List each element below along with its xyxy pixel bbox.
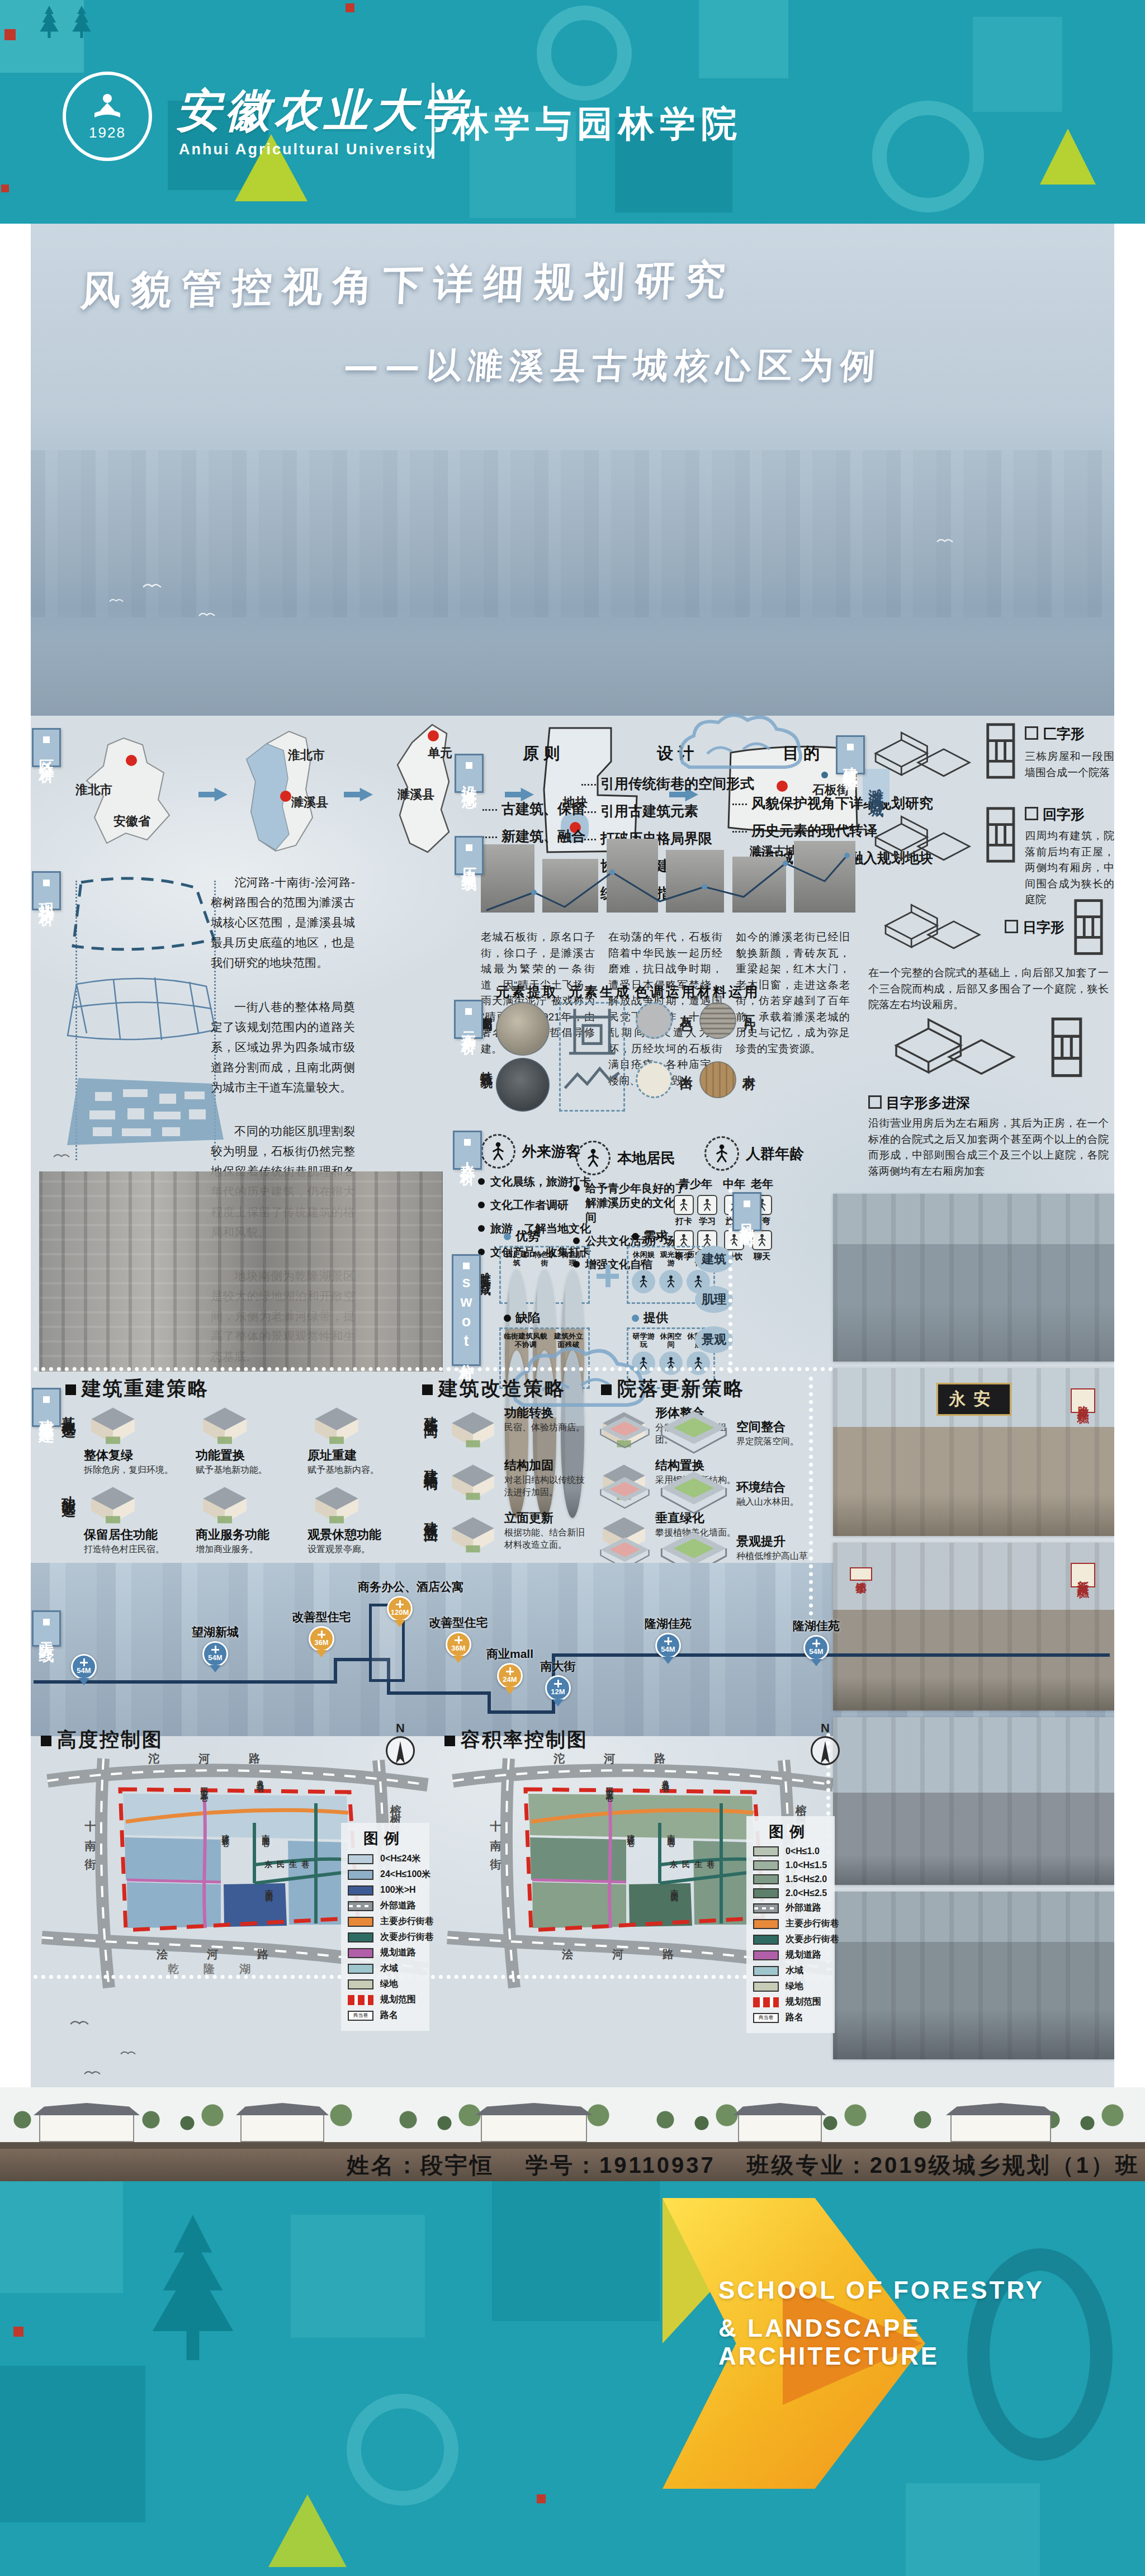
legend-swatch (753, 1950, 779, 1960)
tone-gray-label: 灰色 (678, 1005, 695, 1010)
pattern-shape (872, 101, 984, 212)
poster-subtitle: ——以濉溪县古城核心区为例 (342, 342, 883, 389)
combo-type-3: 日字形 在一个完整的合院式的基础上，向后部又加套了一个三合院而构成，后部又多围合… (868, 894, 1114, 1013)
strategy-item-name: 原址重建 (307, 1447, 413, 1464)
plus-icon (664, 1637, 672, 1645)
skyline-pin-label: 望湖新城 (173, 1624, 257, 1640)
height-pin-icon: 54M (803, 1635, 829, 1661)
courtyard-row-name: 环境结合 (736, 1479, 820, 1496)
bird-icon (143, 582, 162, 589)
height-pin-icon: 120M (387, 1596, 413, 1622)
concept-principle-item: 古建筑、保留 (482, 800, 585, 818)
courtyard-row-desc: 融入山水林田。 (736, 1496, 820, 1508)
tab-building-combination: 建筑组合 (836, 735, 865, 774)
tab-design-concept: 设计概念 (455, 754, 484, 793)
strategy-item: 立面更新 根据功能、结合新旧材料改造立面。 (446, 1510, 590, 1554)
history-photo-strip (481, 839, 850, 923)
element-col-material: 材料运用 (697, 983, 760, 1001)
location-dot (428, 730, 439, 741)
legend-row: 外部道路 (348, 1900, 423, 1912)
demand-item: 休闲娱乐 (631, 1251, 657, 1293)
activity-label: 聊天 (754, 1251, 770, 1262)
pattern-shape (268, 2494, 347, 2567)
courtyard-row-name: 空间整合 (736, 1419, 820, 1435)
student-name-label: 姓名： (347, 2150, 420, 2181)
bird-icon (70, 2019, 89, 2026)
legend-swatch (753, 1997, 779, 2007)
skyline-pin-label: 隆湖佳苑 (626, 1616, 710, 1632)
age-group-name: 青少年 (679, 1176, 712, 1192)
student-info-bar: 姓名： 段宇恒 学号： 19110937 班级专业： 2019级城乡规划（1）班 (0, 2149, 1145, 2181)
legend-row: 典当巷 路名 (753, 2012, 828, 2024)
location-dot (280, 791, 291, 802)
legend-row: 24<H≤100米 (348, 1869, 423, 1880)
bullet-dot (573, 1185, 580, 1192)
combo-type-1: 匚字形 三栋房屋和一段围墙围合成一个院落 (868, 721, 1114, 788)
logo-year: 1928 (89, 124, 126, 141)
divider-dotted (34, 1367, 833, 1371)
legend-swatch: 典当巷 (348, 2011, 373, 2021)
combo-type-name: 匚字形 (1025, 725, 1114, 743)
iso-house-icon (446, 1514, 500, 1554)
ages-heading: 人群年龄 (704, 1136, 804, 1171)
inner-road-label: 东民生巷 (264, 1860, 314, 1870)
student-id-label: 学号： (526, 2150, 599, 2181)
legend-label: 1.5<H≤2.0 (786, 1874, 827, 1884)
legend-row: 1.5<H≤2.0 (753, 1874, 828, 1884)
location-dot (777, 781, 788, 792)
pattern-shape (699, 0, 788, 78)
courtyard-row: 环境结合 融入山水林田。 (598, 1468, 833, 1518)
inner-road-label: 建设巷 (626, 1828, 636, 1835)
legend-row: 0<H≤24米 (348, 1853, 423, 1865)
legend-swatch (348, 1885, 373, 1896)
courtyard-rows: 空间整合 界定院落空间。 环境结合 融入山水林田。 景观提升 种植低维护高山草花… (598, 1408, 833, 1578)
height-pin-icon: 12M (545, 1675, 571, 1701)
activity-icon (674, 1195, 694, 1215)
cloud-motif-icon (668, 709, 813, 776)
legend-label: 水域 (786, 1965, 803, 1977)
tone-cream-label: 米白 (678, 1065, 695, 1069)
pattern-shape (347, 2394, 458, 2506)
strategy-item: 观景休憩功能 设置观景亭廊。 (307, 1484, 413, 1556)
height-value: 54M (73, 1666, 95, 1675)
map-label: 濉溪县 (291, 794, 328, 811)
rebuild-strategy-title: 建筑重建策略 (65, 1376, 209, 1402)
iso-house-icon (307, 1405, 366, 1446)
legend-row: 规划范围 (753, 1996, 828, 2008)
swot-pill: 肌理 (695, 1286, 733, 1313)
boundary-diagram (64, 872, 221, 956)
renovation-strategy-title: 建筑改造策略 (422, 1376, 566, 1402)
legend-row: 水域 (753, 1965, 828, 1977)
legend-label: 规划道路 (786, 1949, 821, 1961)
demand-item: 观光旅游 (658, 1251, 684, 1293)
legend-swatch (348, 1995, 373, 2005)
plus-icon (812, 1639, 820, 1647)
style-reference-photo: 永安 脆皮年糕 (833, 1368, 1114, 1536)
plus-icon (211, 1646, 219, 1653)
legend-label: 2.0<H≤2.5 (786, 1888, 827, 1898)
legend-swatch (753, 1846, 779, 1856)
pattern-shape (4, 29, 16, 40)
inner-road-label: 典当巷 (661, 1774, 671, 1780)
bird-icon (198, 611, 215, 617)
material-tile-circle (699, 1002, 736, 1039)
swot-pictogram-circle (632, 1270, 655, 1293)
material-wood-label: 木材 (741, 1065, 758, 1069)
generated-element-glyph (561, 1004, 623, 1110)
student-id: 19110937 (599, 2153, 716, 2178)
height-value: 120M (389, 1608, 411, 1617)
swot-pill: 建筑 (695, 1246, 733, 1273)
road-label-bottom: 浍河路 (157, 1947, 307, 1962)
pattern-shape (973, 17, 1062, 112)
bullet-dot (573, 1237, 580, 1244)
activity-cell: 聊天 (752, 1230, 772, 1262)
plus-icon (318, 1630, 325, 1638)
tab-rebuild: 建筑重建 (32, 1388, 61, 1427)
bird-icon (84, 2069, 101, 2076)
height-value: 54M (805, 1647, 827, 1656)
courtyard-axonometric (868, 1005, 1042, 1089)
legend-swatch (348, 1964, 373, 1974)
legend-swatch: 典当巷 (753, 2013, 779, 2023)
figure-ground-diagram (56, 1067, 229, 1156)
plus-icon (80, 1658, 88, 1666)
iso-courtyard-icon (658, 1408, 730, 1457)
strategy-item: 原址重建 赋予基地新内容。 (307, 1405, 413, 1476)
courtyard-axonometric (868, 894, 997, 961)
legend-row: 主要步行街巷 (753, 1918, 828, 1930)
legend-label: 规划范围 (380, 1994, 416, 2006)
inner-road-label: 典当巷 (256, 1774, 266, 1780)
iso-house-icon (84, 1484, 142, 1525)
height-value: 36M (310, 1638, 333, 1647)
street-dot (821, 772, 828, 778)
activity-cell: 学习 (697, 1195, 717, 1227)
hero-aerial-photo: 风貌管控视角下详细规划研究 ——以濉溪县古城核心区为例 (31, 224, 1114, 716)
poster-page: 1928 安徽农业大学 Anhui Agricultural Universit… (0, 0, 1145, 2576)
skyline-pin: 改善型住宅 36M (280, 1609, 363, 1652)
legend-row: 主要步行街巷 (348, 1916, 423, 1927)
pattern-shape (0, 2181, 123, 2293)
tab-style-intention: 风貌意向 (732, 1192, 761, 1231)
residents-heading: 本地居民 (576, 1141, 675, 1175)
legend-swatch (348, 1901, 373, 1911)
courtyard-plan-icon (1049, 1005, 1084, 1089)
bird-icon (120, 2049, 136, 2055)
height-pin-icon: 54M (71, 1654, 97, 1680)
strategy-item-name: 商业服务功能 (196, 1526, 301, 1543)
map-label: 淮北市 (75, 782, 112, 798)
plus-icon (597, 1265, 619, 1287)
legend-label: 绿地 (380, 1978, 398, 1990)
courtyard-axonometric (868, 805, 977, 872)
street-grid-diagram (60, 967, 222, 1051)
concept-design-item: 引用古建筑元素 (581, 802, 754, 820)
legend-row: 2.0<H≤2.5 (753, 1888, 828, 1898)
legend-label: 0<H≤1.0 (786, 1846, 820, 1856)
map-label: 濉溪县 (398, 786, 434, 803)
skyline-pin: 54M (42, 1638, 126, 1680)
legend-row: 1.0<H≤1.5 (753, 1860, 828, 1870)
height-map-title: 高度控制图 (41, 1727, 163, 1753)
status-paragraph: 一街八巷的整体格局奠定了该规划范围内的道路关系，区域边界为四条城市级道路分割而成… (211, 997, 355, 1098)
height-value: 54M (657, 1645, 679, 1653)
tab-location-analysis: 区位分析 (32, 728, 61, 767)
tab-history-axis: 历史轴线 (455, 836, 484, 875)
map-label: 安徽省 (113, 813, 150, 830)
inner-road-label: 南关街 (670, 1883, 680, 1890)
iso-house-icon (196, 1405, 254, 1446)
map-label: 淮北市 (288, 747, 325, 764)
legend-label: 路名 (380, 2010, 398, 2021)
legend-swatch (753, 1966, 779, 1976)
skyline-pin-label: 隆湖佳苑 (774, 1618, 858, 1634)
legend-label: 外部道路 (380, 1900, 416, 1912)
elevation-strip (0, 2087, 1145, 2149)
combo-type-name: 日字形 (1005, 918, 1064, 937)
location-dot (126, 755, 137, 766)
age-group-name: 老年 (751, 1176, 773, 1192)
legend-title: 图例 (769, 1822, 828, 1842)
tab-swot-analysis: swot分析 (452, 1254, 481, 1366)
student-class-label: 班级专业： (747, 2150, 870, 2181)
strategy-item: 保留居住功能 打造特色村庄民宿。 (84, 1484, 189, 1556)
advantage-box: 历史建筑 特色水街 街巷肌理 (499, 1246, 590, 1304)
pattern-shape (906, 2483, 1040, 2576)
skyline-pin-label: 南大街 (516, 1658, 600, 1674)
age-group-name: 中年 (723, 1176, 745, 1192)
legend-label: 绿地 (786, 1981, 803, 1992)
legend-row: 绿地 (348, 1978, 423, 1990)
iso-house-icon (84, 1405, 142, 1446)
pattern-shape (537, 6, 632, 101)
plus-icon (506, 1667, 514, 1675)
strategy-row-label: 建筑结构 (422, 1457, 441, 1468)
legend-row: 次要步行街巷 (753, 1934, 828, 1945)
tab-element-analysis: 元素分析 (454, 1000, 483, 1039)
map-label: 单元 (428, 745, 452, 762)
elevation-house (738, 2114, 822, 2142)
strategy-row-label: 功能改造 (60, 1484, 78, 1495)
elevation-roof (475, 2103, 593, 2115)
legend-row: 典当巷 路名 (348, 2010, 423, 2021)
student-name: 段宇恒 (420, 2150, 494, 2181)
skyline-pin-label: 商务办公、酒店公寓 (358, 1579, 442, 1595)
iso-house-icon (307, 1484, 366, 1525)
legend-row: 外部道路 (753, 1902, 828, 1914)
combo-type-4: 目字形多进深 沿街营业用房后为左右厢房，其后为正房，在一个标准的合院式之后又加套… (868, 1005, 1114, 1179)
university-logo: 1928 (63, 72, 152, 161)
divider-dotted (728, 1189, 732, 1373)
strategy-item: 商业服务功能 增加商业服务。 (196, 1484, 301, 1556)
road-label-top: 沱河路 (553, 1751, 704, 1766)
road-label-top: 沱河路 (148, 1751, 299, 1766)
poster-title: 风貌管控视角下详细规划研究 (79, 253, 737, 318)
legend-swatch (348, 1870, 373, 1880)
activity-label: 打卡 (675, 1216, 692, 1227)
residents-title: 本地居民 (617, 1148, 675, 1168)
height-pin-icon: 54M (655, 1633, 681, 1658)
combo-type-name: 目字形多进深 (868, 1094, 1114, 1112)
element-col-tone: 色调运用 (635, 983, 697, 1001)
pattern-shape (346, 3, 354, 12)
strategy-item-desc: 民宿、体验坊商店。 (504, 1421, 588, 1434)
legend-swatch (753, 1982, 779, 1992)
elevation-roof (34, 2103, 140, 2115)
historic-street-collage (39, 1171, 443, 1372)
strategy-item-name: 立面更新 (504, 1510, 588, 1526)
top-pattern-band: 1928 安徽农业大学 Anhui Agricultural Universit… (0, 0, 1145, 224)
strategy-item-desc: 拆除危房，复归环境。 (84, 1464, 189, 1476)
plus-icon (396, 1600, 404, 1608)
tab-status-analysis: 现状分析 (32, 871, 61, 910)
legend-swatch (348, 1979, 373, 1989)
elevation-house (240, 2114, 324, 2142)
elevation-house (481, 2114, 587, 2142)
height-value: 54M (204, 1653, 226, 1662)
elevation-house (39, 2114, 134, 2142)
courtyard-row: 空间整合 界定院落空间。 (598, 1408, 833, 1457)
legend-label: 路名 (786, 2012, 803, 2024)
legend-label: 外部道路 (786, 1902, 821, 1914)
legend-row: 规划范围 (348, 1994, 423, 2006)
courtyard-row-name: 景观提升 (736, 1533, 820, 1550)
school-name-en-line2: & LANDSCAPE ARCHITECTURE (718, 2314, 1145, 2370)
style-reference-photo (833, 1892, 1114, 2059)
running-person-icon (704, 1136, 739, 1171)
bullet-dot (478, 1225, 485, 1232)
skyline-pin-label (42, 1638, 126, 1653)
legend-label: 规划道路 (380, 1947, 416, 1959)
strategy-item: 整体复绿 拆除危房，复归环境。 (84, 1405, 189, 1476)
legend-swatch (753, 1888, 779, 1898)
combo-type-desc: 沿街营业用房后为左右厢房，其后为正房，在一个标准的合院式之后又加套两个甚至两个以… (868, 1116, 1109, 1179)
logo-book-person-icon (91, 92, 124, 121)
legend-swatch (753, 1919, 779, 1929)
bird-icon (109, 597, 124, 603)
legend-swatch (753, 1874, 779, 1884)
courtyard-strategy-title: 院落更新策略 (601, 1376, 745, 1402)
inner-road-label: 南阁巷 (666, 1828, 676, 1835)
style-reference-photo (833, 1194, 1114, 1362)
road-label-left: 十南街 (489, 1812, 504, 1869)
legend-row: 绿地 (753, 1981, 828, 1992)
far-map-title: 容积率控制图 (444, 1727, 588, 1753)
legend-label: 24<H≤100米 (380, 1869, 430, 1880)
university-name-en: Anhui Agricultural University (179, 141, 436, 158)
height-pin-icon: 36M (309, 1626, 334, 1652)
tone-gray-circle (636, 1002, 673, 1039)
iso-house-icon (446, 1409, 500, 1449)
bird-icon (936, 537, 953, 543)
material-wood-circle (699, 1061, 736, 1098)
pattern-shape (492, 2181, 660, 2321)
combo-type-2: 回字形 四周均有建筑，院落前后均有正屋，两侧均有厢房，中间围合成为狭长的庭院 (868, 805, 1114, 908)
strategy-item-name: 功能置换 (196, 1447, 301, 1464)
skyline-pin: 隆湖佳苑 54M (626, 1616, 710, 1658)
height-pin-icon: 54M (202, 1641, 228, 1667)
legend-swatch (348, 1932, 373, 1942)
road-label-bottom: 浍河路 (562, 1947, 713, 1962)
strategy-item-desc: 对老旧结构以传统技法进行加固。 (504, 1474, 588, 1498)
activity-cell: 打卡 (674, 1195, 694, 1227)
activity-label: 学习 (699, 1216, 716, 1227)
strategy-item-desc: 赋予基地新功能。 (196, 1464, 301, 1476)
legend-row: 100米>H (348, 1884, 423, 1896)
bullet-dot (632, 1315, 639, 1322)
bullet-dot (632, 1233, 639, 1240)
inner-road-label: 平安里巷 (605, 1781, 615, 1790)
strategy-item-name: 整体复绿 (84, 1447, 189, 1464)
lake-label: 乾隆湖 (168, 1961, 275, 1977)
skyline-pin: 南大街 12M (516, 1658, 600, 1701)
pattern-shape (291, 2215, 425, 2338)
element-col-extract: 元素提取 (496, 983, 559, 1001)
city-map: 淮北市 濉溪县 (222, 728, 339, 857)
legend-label: 规划范围 (786, 1996, 821, 2008)
road-label-right: 榕树路 (389, 1795, 404, 1825)
legend-swatch (348, 1948, 373, 1958)
header-divider (432, 83, 434, 159)
inner-road-label: 平安里巷 (200, 1781, 210, 1790)
legend-swatch (348, 1854, 373, 1864)
defect-heading: 缺陷 (504, 1310, 540, 1326)
iso-courtyard-icon (598, 1413, 651, 1452)
provide-heading: 提供 (632, 1310, 668, 1326)
legend-row: 0<H≤1.0 (753, 1846, 828, 1856)
standing-person-icon (576, 1141, 611, 1175)
strategy-row: 基地改造 整体复绿 拆除危房，复归环境。 功能置换 赋予基地新功能。 原址重建 (60, 1405, 418, 1476)
bird-icon (53, 1152, 70, 1159)
strategy-item-desc: 赋予基地新内容。 (307, 1464, 413, 1476)
banner-text: 脆皮年糕 (1071, 1388, 1095, 1413)
style-extract-circle (496, 1058, 550, 1112)
skyline-pin: 望湖新城 54M (173, 1624, 257, 1667)
bullet-dot (504, 1315, 511, 1322)
height-value: 12M (547, 1688, 569, 1696)
strategy-item-desc: 根据功能、结合新旧材料改造立面。 (504, 1526, 588, 1551)
legend-row: 规划道路 (348, 1947, 423, 1959)
layout-extract-circle (496, 1002, 550, 1056)
height-value: 36M (447, 1644, 470, 1652)
iso-house-icon (196, 1484, 254, 1525)
timeline-zigzag (481, 839, 850, 923)
courtyard-row-desc: 界定院落空间。 (736, 1435, 820, 1448)
strategy-item-name: 观景休憩功能 (307, 1526, 413, 1543)
strategy-item: 功能置换 赋予基地新功能。 (196, 1405, 301, 1476)
legend-swatch (753, 1860, 779, 1870)
courtyard-plan-icon (985, 805, 1017, 864)
far-map-legend: 图例 0<H≤1.0 1.0<H≤1.5 1.5<H≤2.0 2.0<H≤2 (746, 1816, 835, 2033)
bottom-pattern-band: SCHOOL OF FORESTRY & LANDSCAPE ARCHITECT… (0, 2181, 1145, 2576)
compass-needle (396, 1741, 405, 1764)
advantage-heading: 优势 (504, 1228, 540, 1245)
status-paragraph: 沱河路-十南街-浍河路-榕树路围合的范围为濉溪古城核心区范围，是濉溪县城最具历史… (211, 872, 355, 973)
strategy-item-desc: 打造特色村庄民宿。 (84, 1543, 189, 1556)
pattern-shape (0, 2366, 145, 2522)
courtyard-plan-icon (985, 721, 1017, 781)
courtyard-plan-icon (1072, 896, 1105, 958)
far-control-map: 沱河路 十南街 浍河路 榕树路 平安里巷 典当巷 南阁巷 建设巷 东民生巷 南关… (442, 1750, 836, 1991)
compass-icon: N (811, 1736, 840, 1765)
strategy-item-name: 保留居住功能 (84, 1526, 189, 1543)
legend-label: 100米>H (380, 1884, 416, 1896)
plus-icon (455, 1636, 462, 1644)
legend-label: 次要步行街巷 (786, 1934, 839, 1945)
